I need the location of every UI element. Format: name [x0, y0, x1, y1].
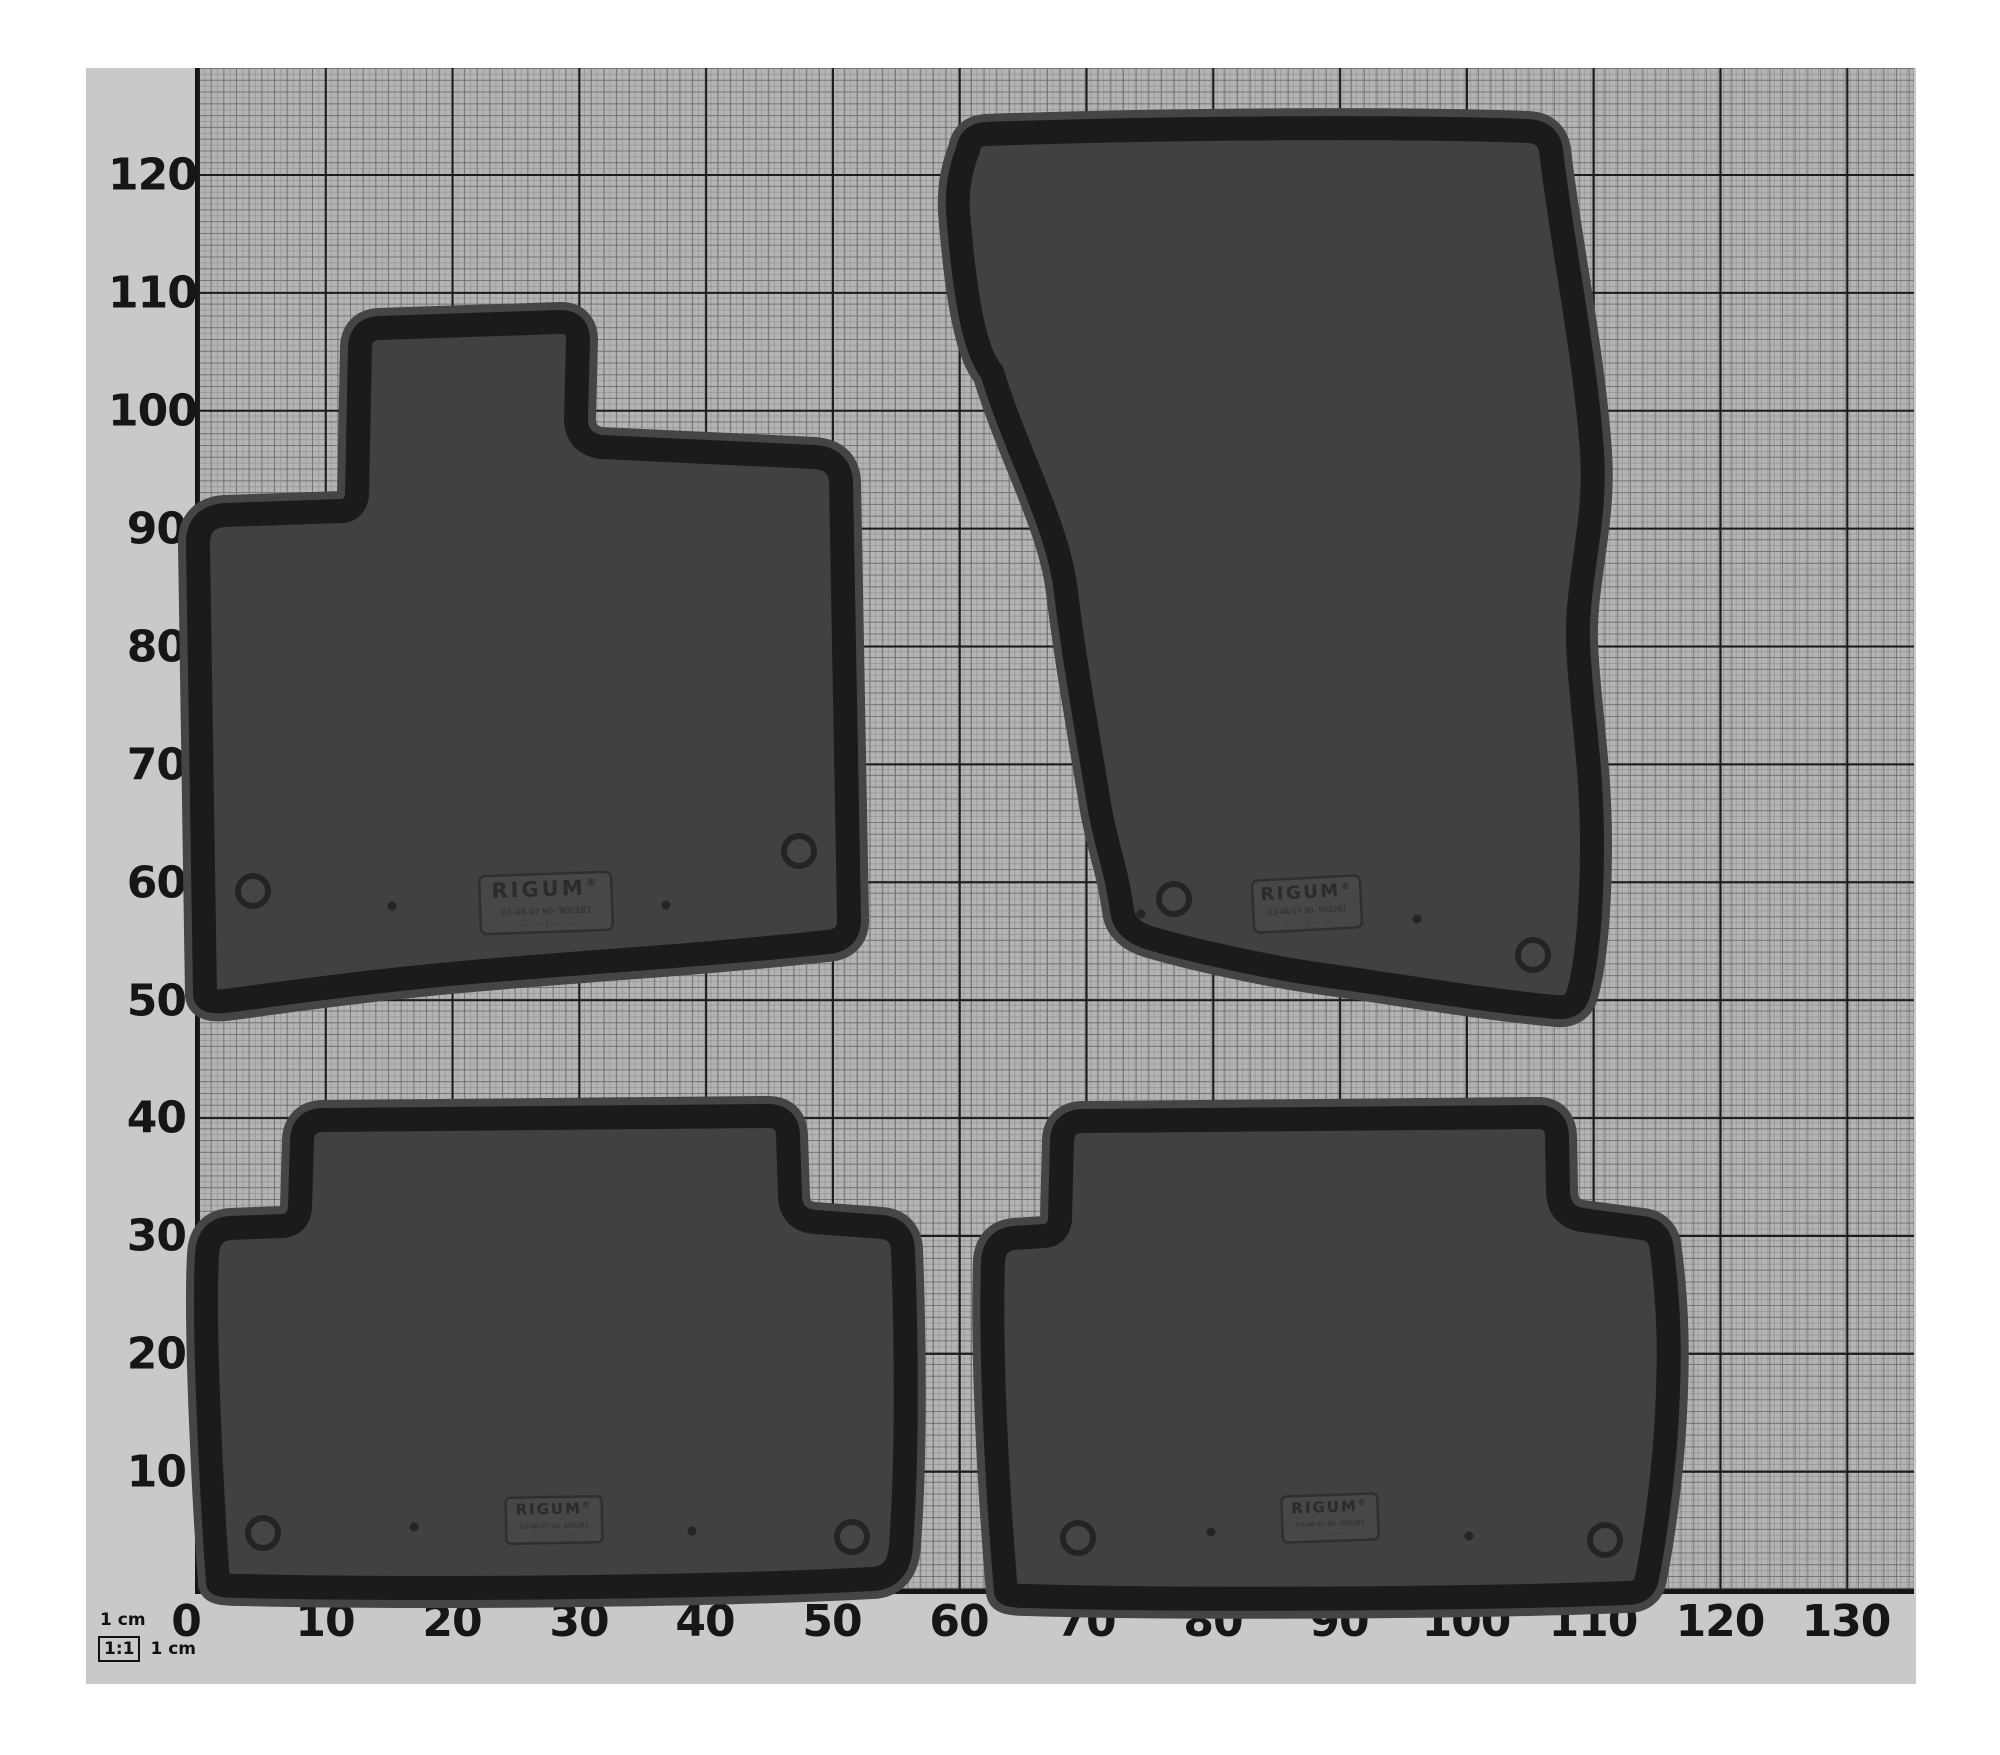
stud-mark	[1207, 1528, 1216, 1537]
brand-plate: RIGUM® 03-48-07 90- 900281 ····· ···· / …	[479, 872, 613, 935]
product-photo-page: 0 10 20 30 40 50 60 70 80 90 100 110 120…	[0, 0, 2000, 1755]
brand-text: RIGUM®	[515, 1499, 592, 1518]
mat-front-left: RIGUM® 03-48-07 90- 900281 ····· ···· / …	[198, 322, 849, 1001]
stud-mark	[1137, 910, 1146, 919]
floor-mats-photo: RIGUM® 03-48-07 90- 900281 ····· ···· / …	[0, 0, 2000, 1755]
code-text: 03-48-07 90- 900281	[520, 1521, 589, 1530]
brand-plate: RIGUM® 03-48-07 90- 900281 ····· ···· / …	[1281, 1493, 1379, 1542]
fixing-hole	[248, 1518, 278, 1548]
info-text: ····· ···· / ····· ····	[532, 1533, 576, 1541]
fixing-hole	[784, 836, 814, 866]
fixing-hole	[1518, 940, 1548, 970]
brand-text: RIGUM®	[491, 875, 600, 903]
mat-front-right: RIGUM® 03-48-07 90- 900281 ····· ···· / …	[958, 128, 1593, 1007]
stud-mark	[388, 902, 397, 911]
fixing-hole	[1590, 1525, 1620, 1555]
brand-text: RIGUM®	[1291, 1497, 1368, 1518]
brand-plate: RIGUM® 03-48-07 90- 900281 ····· ···· / …	[506, 1496, 603, 1544]
mat-rear-right: RIGUM® 03-48-07 90- 900281 ····· ···· / …	[992, 1117, 1668, 1599]
brand-plate: RIGUM® 03-48-07 90- 900281 ····· ···· / …	[1252, 875, 1363, 933]
fixing-hole	[837, 1522, 867, 1552]
stud-mark	[688, 1527, 697, 1536]
fixing-hole	[238, 876, 268, 906]
stud-mark	[1413, 915, 1422, 924]
mat-rear-left: RIGUM® 03-48-07 90- 900281 ····· ···· / …	[206, 1116, 906, 1588]
info-text: ····· ···· / ····· ····	[519, 919, 574, 930]
fixing-hole	[1063, 1523, 1093, 1553]
fixing-hole	[1159, 884, 1189, 914]
stud-mark	[662, 901, 671, 910]
stud-mark	[1465, 1532, 1474, 1541]
stud-mark	[410, 1523, 419, 1532]
